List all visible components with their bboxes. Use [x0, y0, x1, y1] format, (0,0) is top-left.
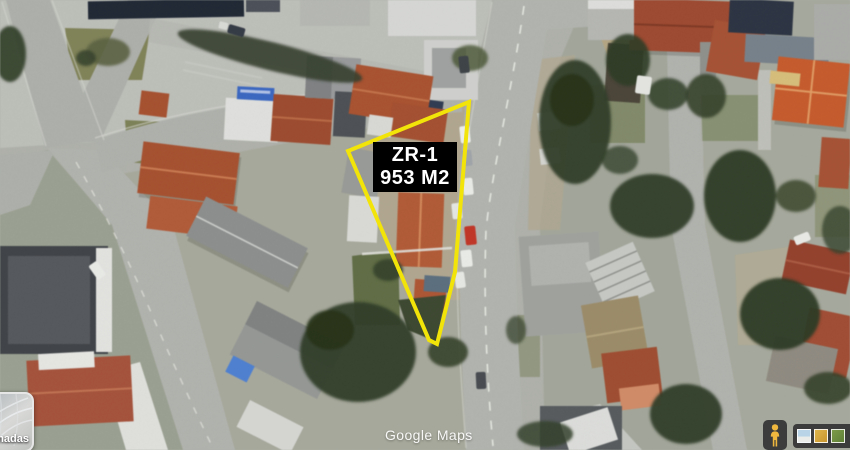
satellite-imagery [0, 0, 850, 450]
parcel-zone-text: ZR-1 [373, 144, 457, 167]
map-viewport[interactable]: ZR-1 953 M2 Google Maps amadas [0, 0, 850, 450]
parcel-area-text: 953 M2 [373, 167, 457, 190]
thumbnail-blue[interactable] [797, 429, 811, 443]
thumbnail-yellow[interactable] [814, 429, 828, 443]
parcel-label: ZR-1 953 M2 [373, 142, 457, 192]
layers-label: amadas [0, 433, 29, 445]
layers-control[interactable]: amadas [0, 392, 34, 450]
imagery-thumbnails-bar[interactable] [793, 424, 850, 448]
pegman-icon [768, 424, 782, 447]
pegman-control[interactable] [763, 420, 787, 450]
image-grain [0, 0, 850, 450]
google-maps-watermark: Google Maps [385, 427, 473, 443]
thumbnail-green[interactable] [831, 429, 845, 443]
